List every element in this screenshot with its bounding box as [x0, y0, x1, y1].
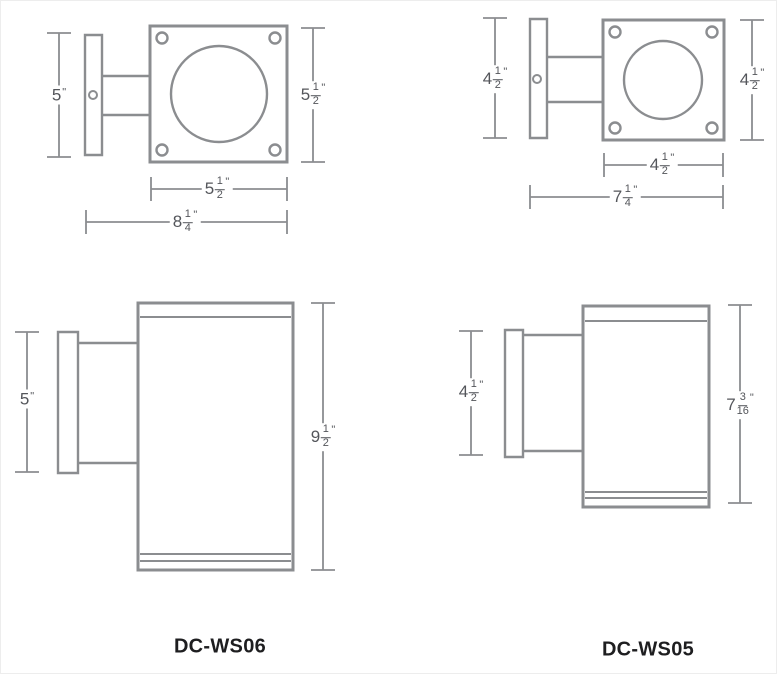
fraction: 12	[493, 66, 502, 92]
dim-value: 7	[613, 189, 622, 206]
dim-label-ws06-top-left: 5"	[49, 86, 69, 105]
dim-value: 5	[20, 391, 29, 408]
dim-value: 5	[301, 87, 310, 104]
dim-value: 4	[459, 384, 468, 401]
ws05-backplate-hole	[533, 75, 541, 83]
ws06-side-view	[15, 303, 335, 570]
ws05-body-trim-lines	[585, 321, 707, 498]
ws06-mounting-arm	[102, 76, 150, 115]
dim-label-ws06-top-face-width: 512"	[202, 175, 233, 203]
dim-value: 4	[483, 71, 492, 88]
dim-label-ws06-side-right: 912"	[308, 423, 339, 451]
inch-mark: "	[750, 393, 754, 404]
dim-value: 5	[205, 181, 214, 198]
inch-mark: "	[193, 210, 197, 221]
ws06-cylinder-body	[138, 303, 293, 570]
ws05-lens	[624, 41, 702, 119]
dim-label-ws06-top-depth: 814"	[170, 208, 201, 236]
ws05-side-backplate	[505, 330, 523, 457]
inch-mark: "	[479, 380, 483, 391]
ws06-backplate-hole	[89, 91, 97, 99]
inch-mark: "	[62, 88, 66, 99]
dim-value: 4	[740, 72, 749, 89]
dim-value: 5	[52, 87, 61, 104]
inch-mark: "	[670, 153, 674, 164]
ws05-fixture-face	[603, 20, 724, 140]
ws05-side-view	[459, 305, 752, 507]
ws05-top-view	[483, 18, 764, 209]
dim-value: 8	[173, 214, 182, 231]
fraction: 316	[737, 392, 749, 418]
fraction: 12	[469, 379, 478, 405]
inch-mark: "	[503, 67, 507, 78]
dim-label-ws06-side-left: 5"	[17, 390, 37, 409]
fraction: 12	[750, 67, 759, 93]
fraction: 12	[321, 424, 330, 450]
dim-label-ws05-side-left: 412"	[456, 378, 487, 406]
inch-mark: "	[225, 177, 229, 188]
fraction: 12	[660, 152, 669, 178]
inch-mark: "	[30, 392, 34, 403]
dim-value: 7	[726, 397, 735, 414]
inch-mark: "	[331, 425, 335, 436]
fraction: 12	[215, 176, 224, 202]
ws06-backplate	[85, 35, 102, 155]
inch-mark: "	[760, 68, 764, 79]
ws06-corner-screws	[157, 33, 281, 156]
dim-label-ws05-top-left: 412"	[480, 65, 511, 93]
ws05-cylinder-body	[583, 306, 709, 507]
ws06-top-view	[47, 26, 325, 234]
dimension-drawing	[0, 0, 777, 674]
ws06-side-arm	[78, 343, 138, 463]
spec-sheet: 5" 512" 512" 814" 412" 412" 412" 714" 5"…	[0, 0, 777, 674]
dim-label-ws05-side-right: 7316"	[723, 391, 757, 419]
inch-mark: "	[321, 83, 325, 94]
inch-mark: "	[633, 185, 637, 196]
ws05-side-arm	[523, 335, 583, 451]
ws06-side-backplate	[58, 332, 78, 473]
dim-label-ws05-top-depth: 714"	[610, 183, 641, 211]
fraction: 14	[183, 209, 192, 235]
dim-label-ws05-top-face-width: 412"	[647, 151, 678, 179]
ws06-lens	[171, 46, 267, 142]
fraction: 14	[623, 184, 632, 210]
model-label-ws05: DC-WS05	[602, 639, 694, 662]
ws06-body-trim-lines	[140, 317, 291, 561]
dim-value: 4	[650, 157, 659, 174]
dim-label-ws05-top-right: 412"	[737, 66, 768, 94]
model-label-ws06: DC-WS06	[174, 636, 266, 659]
ws05-mounting-arm	[547, 57, 603, 102]
dim-value: 9	[311, 429, 320, 446]
dim-label-ws06-top-right: 512"	[298, 81, 329, 109]
fraction: 12	[311, 82, 320, 108]
